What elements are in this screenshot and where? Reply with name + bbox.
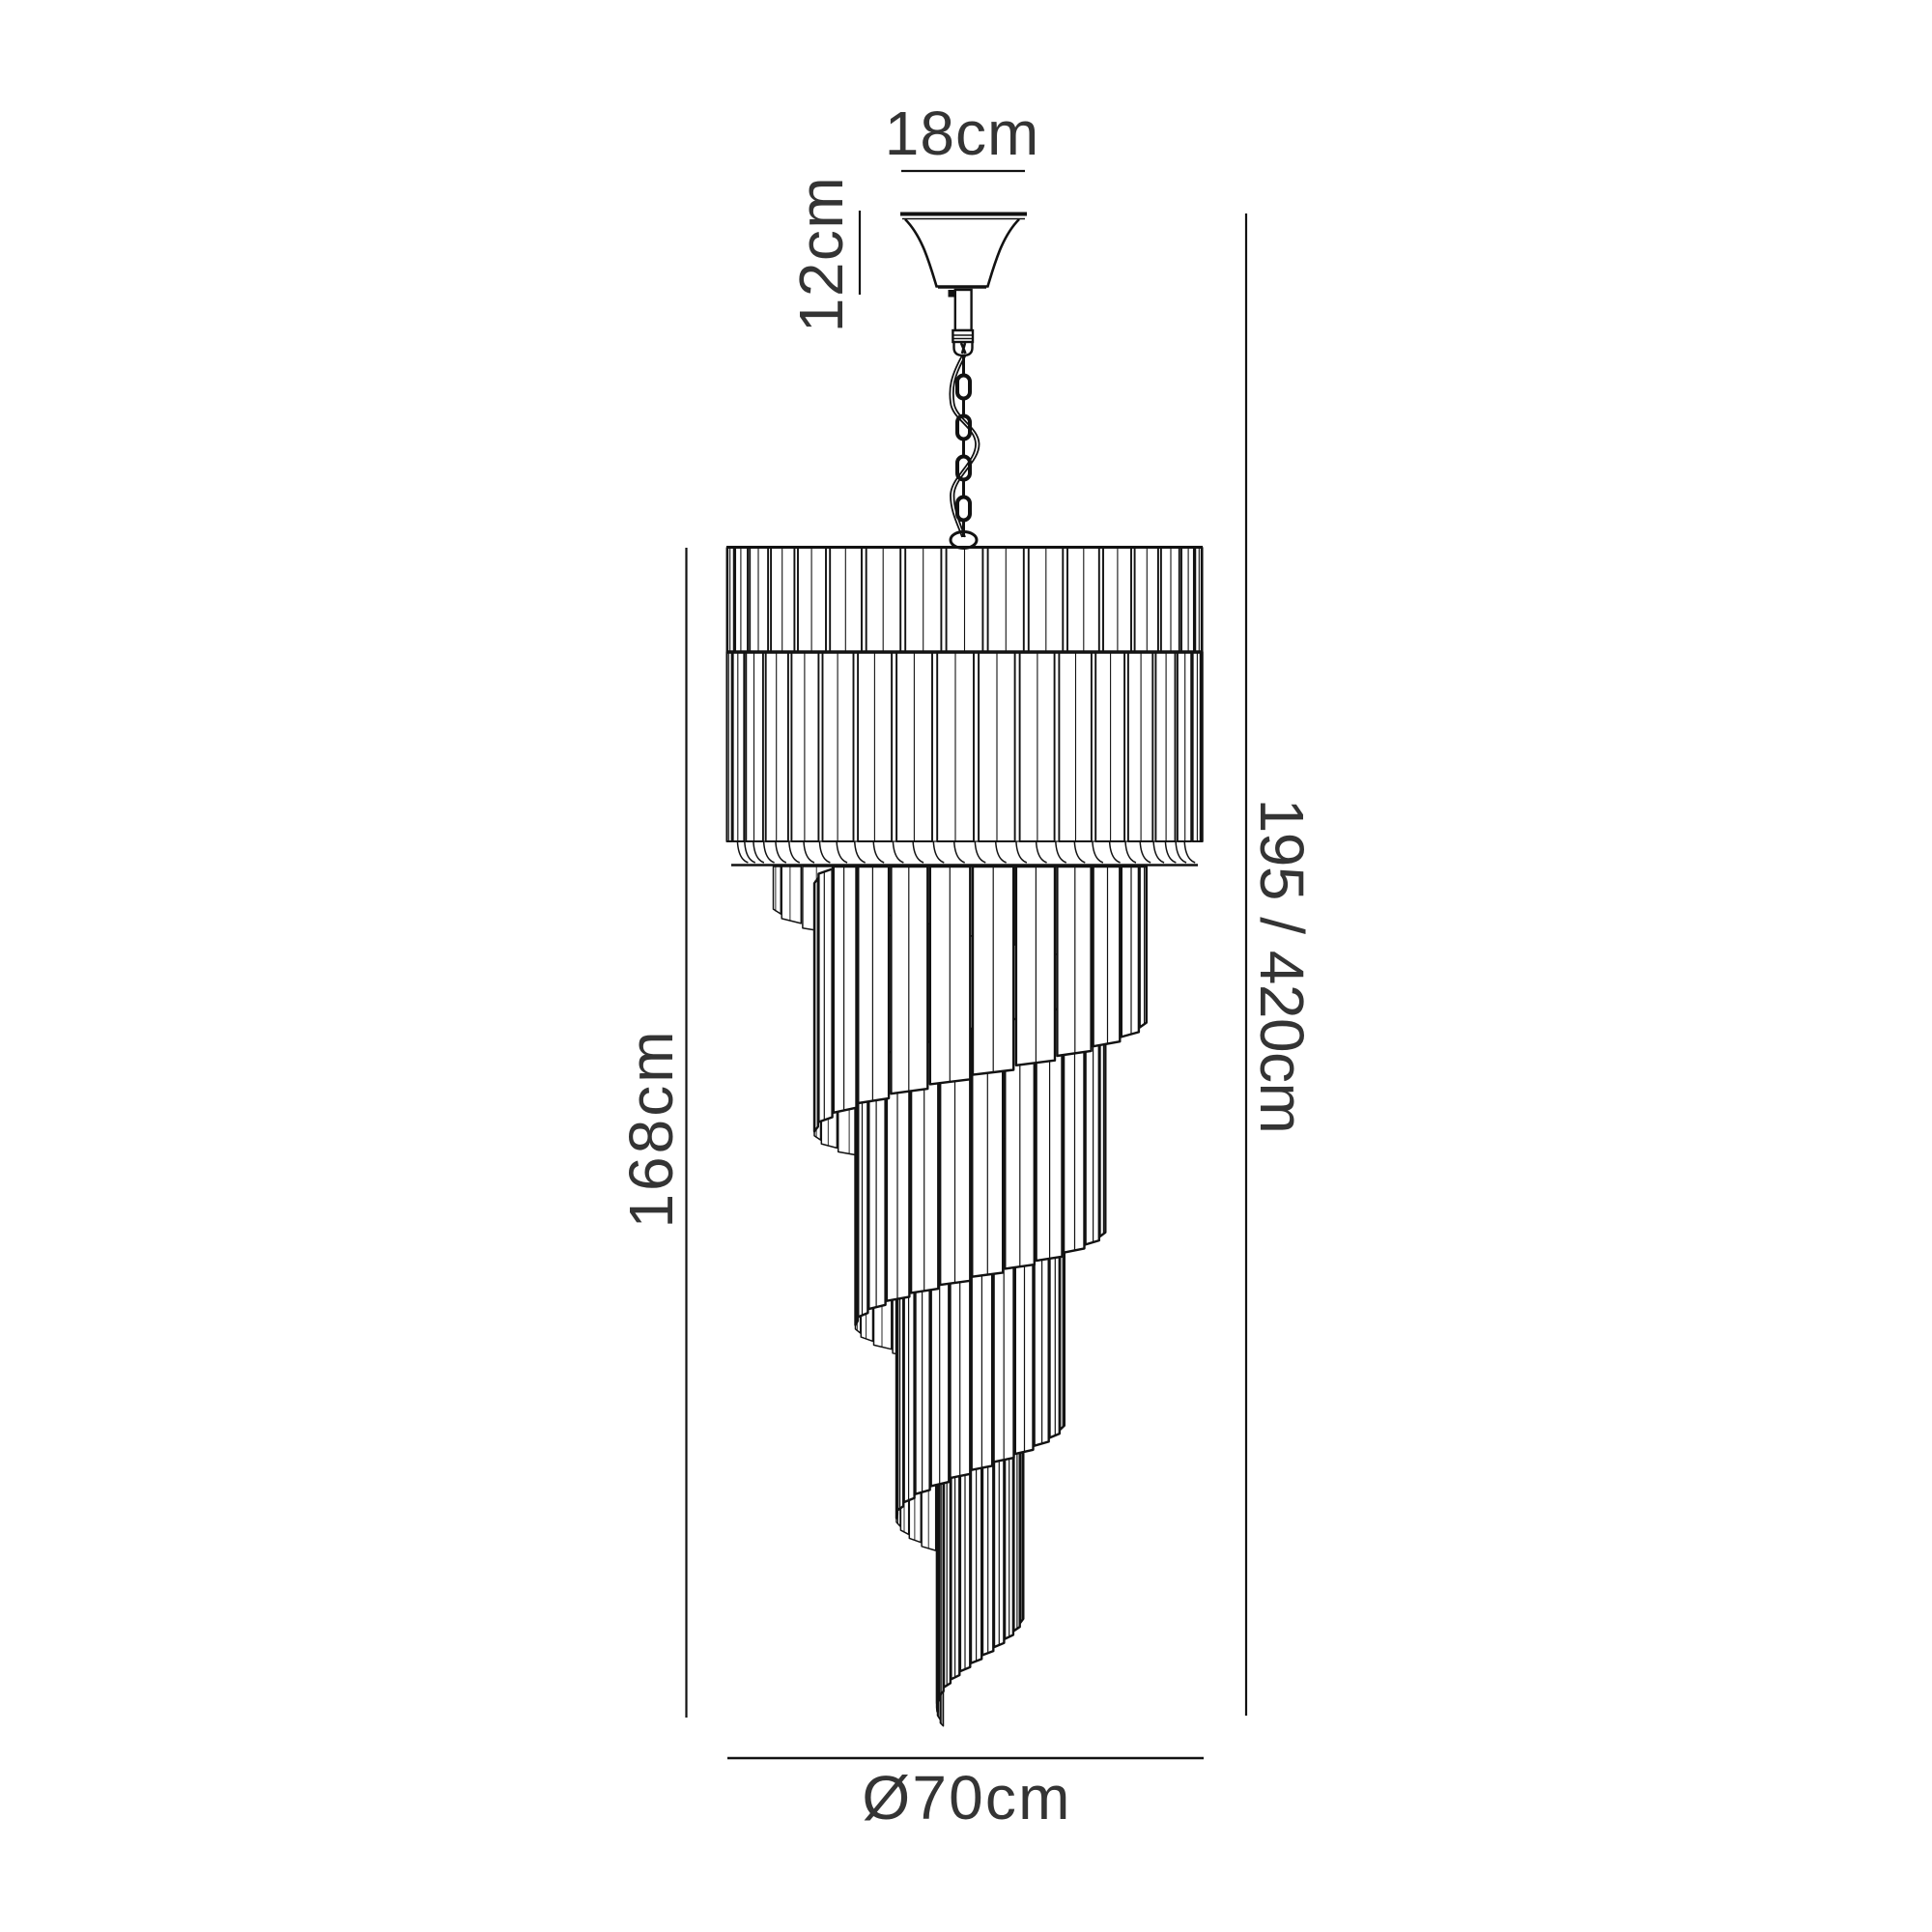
svg-text:Ø70cm: Ø70cm: [862, 1763, 1071, 1833]
svg-text:18cm: 18cm: [885, 99, 1040, 168]
svg-text:12cm: 12cm: [786, 176, 856, 333]
svg-text:168cm: 168cm: [616, 1028, 686, 1228]
svg-text:195 / 420cm: 195 / 420cm: [1247, 799, 1317, 1134]
